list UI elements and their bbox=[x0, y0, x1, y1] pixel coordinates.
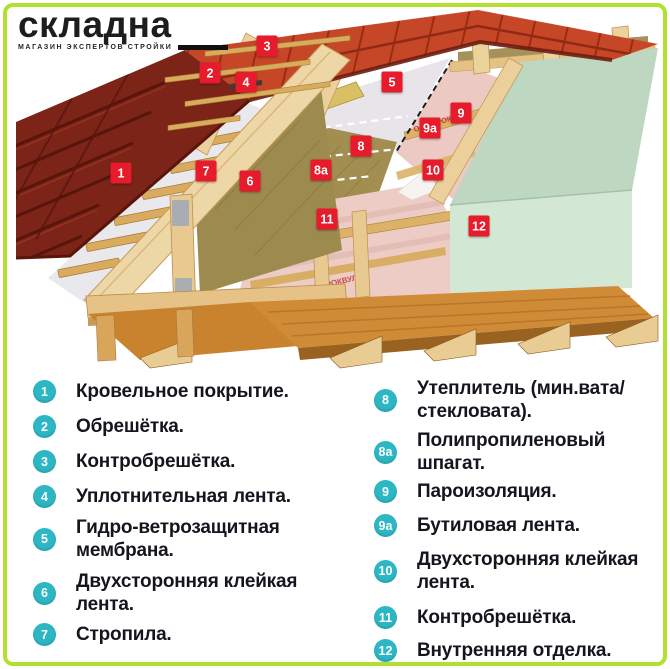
marker-12: 12 bbox=[469, 216, 490, 237]
legend-label-3: Контробрешётка. bbox=[76, 450, 326, 473]
legend-badge-9: 9 bbox=[374, 480, 397, 503]
legend-label-8a: Полипропиленовый шпагат. bbox=[417, 429, 667, 475]
marker-1: 1 bbox=[111, 163, 132, 184]
legend-label-6: Двухсторонняя клейкая лента. bbox=[76, 570, 326, 616]
legend-label-10: Двухсторонняя клейкая лента. bbox=[417, 548, 667, 594]
marker-9a: 9а bbox=[420, 118, 441, 139]
brand-name: складна bbox=[18, 6, 228, 44]
legend-label-9a: Бутиловая лента. bbox=[417, 514, 667, 537]
marker-11: 11 bbox=[317, 209, 338, 230]
legend-badge-5: 5 bbox=[33, 528, 56, 551]
brand-tagline: МАГАЗИН ЭКСПЕРТОВ СТРОЙКИ bbox=[18, 44, 172, 51]
legend-badge-8: 8 bbox=[374, 389, 397, 412]
brand-logo: складна МАГАЗИН ЭКСПЕРТОВ СТРОЙКИ bbox=[18, 6, 228, 51]
legend-item-7: 7 Стропила. bbox=[33, 623, 326, 646]
marker-10: 10 bbox=[423, 160, 444, 181]
legend-label-9: Пароизоляция. bbox=[417, 480, 667, 503]
legend-item-5: 5 Гидро-ветрозащитная мембрана. bbox=[33, 516, 326, 562]
marker-2: 2 bbox=[200, 63, 221, 84]
legend-item-12: 12 Внутренняя отделка. bbox=[374, 639, 667, 662]
legend-badge-6: 6 bbox=[33, 582, 56, 605]
marker-8a: 8а bbox=[311, 160, 332, 181]
infographic-page: складна МАГАЗИН ЭКСПЕРТОВ СТРОЙКИ bbox=[0, 0, 670, 669]
legend-item-8: 8 Утеплитель (мин.вата/ стекловата). bbox=[374, 377, 667, 423]
legend-item-2: 2 Обрешётка. bbox=[33, 415, 326, 438]
legend-label-8: Утеплитель (мин.вата/ стекловата). bbox=[417, 377, 667, 423]
legend-badge-4: 4 bbox=[33, 485, 56, 508]
legend-item-11: 11 Контробрешётка. bbox=[374, 606, 667, 629]
legend-badge-8a: 8а bbox=[374, 441, 397, 464]
marker-5: 5 bbox=[382, 72, 403, 93]
roof-cutaway-illustration: ООО «РОКВУЛ» ООО «РОКВУЛ» ООО «РОКВУЛ» bbox=[0, 0, 670, 372]
legend-item-8a: 8а Полипропиленовый шпагат. bbox=[374, 429, 667, 475]
legend-label-12: Внутренняя отделка. bbox=[417, 639, 667, 662]
legend-item-4: 4 Уплотнительная лента. bbox=[33, 485, 326, 508]
legend-item-6: 6 Двухсторонняя клейкая лента. bbox=[33, 570, 326, 616]
legend-item-3: 3 Контробрешётка. bbox=[33, 450, 326, 473]
legend-item-9a: 9а Бутиловая лента. bbox=[374, 514, 667, 537]
marker-4: 4 bbox=[236, 72, 257, 93]
legend-item-9: 9 Пароизоляция. bbox=[374, 480, 667, 503]
marker-6: 6 bbox=[240, 171, 261, 192]
legend-badge-11: 11 bbox=[374, 606, 397, 629]
legend-label-4: Уплотнительная лента. bbox=[76, 485, 326, 508]
marker-3: 3 bbox=[257, 36, 278, 57]
legend-label-5: Гидро-ветрозащитная мембрана. bbox=[76, 516, 326, 562]
legend-badge-9a: 9а bbox=[374, 514, 397, 537]
brand-bar-decor bbox=[178, 45, 228, 50]
legend-item-1: 1 Кровельное покрытие. bbox=[33, 380, 326, 403]
legend-label-11: Контробрешётка. bbox=[417, 606, 667, 629]
marker-9: 9 bbox=[451, 103, 472, 124]
legend-item-10: 10 Двухсторонняя клейкая лента. bbox=[374, 548, 667, 594]
marker-8: 8 bbox=[351, 136, 372, 157]
legend-badge-1: 1 bbox=[33, 380, 56, 403]
legend-label-1: Кровельное покрытие. bbox=[76, 380, 326, 403]
legend-badge-10: 10 bbox=[374, 560, 397, 583]
legend-badge-2: 2 bbox=[33, 415, 56, 438]
legend-badge-7: 7 bbox=[33, 623, 56, 646]
marker-7: 7 bbox=[196, 161, 217, 182]
legend-badge-12: 12 bbox=[374, 639, 397, 662]
legend-label-7: Стропила. bbox=[76, 623, 326, 646]
legend-label-2: Обрешётка. bbox=[76, 415, 326, 438]
legend-badge-3: 3 bbox=[33, 450, 56, 473]
